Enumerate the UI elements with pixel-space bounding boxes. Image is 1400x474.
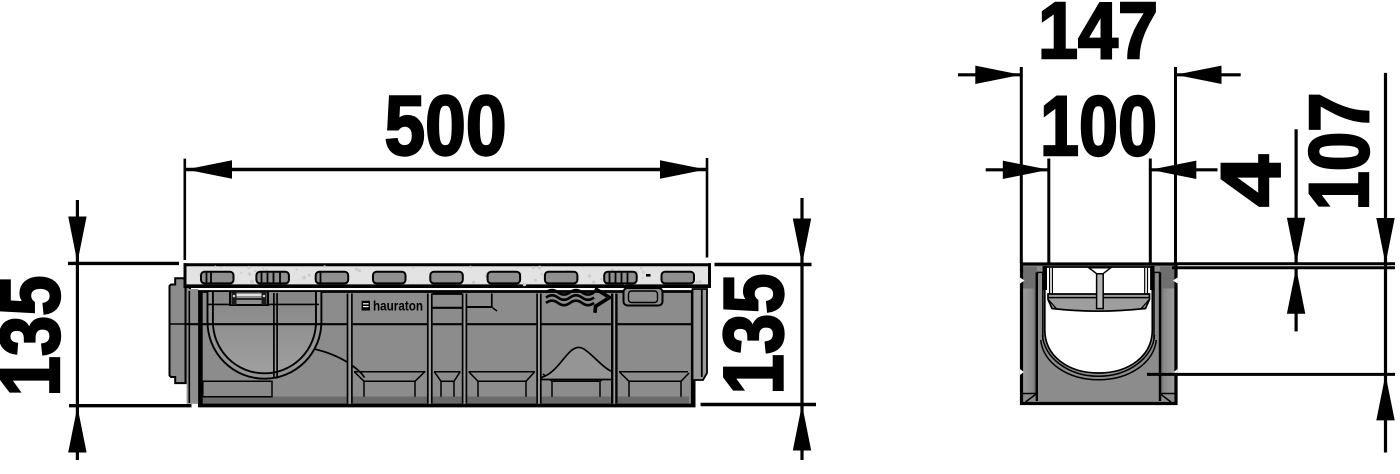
svg-text:100: 100 <box>1040 79 1157 173</box>
svg-text:hauraton: hauraton <box>373 299 423 314</box>
svg-text:4: 4 <box>1204 155 1298 207</box>
svg-text:147: 147 <box>1038 0 1158 75</box>
svg-text:107: 107 <box>1292 93 1386 211</box>
svg-text:135: 135 <box>707 274 801 395</box>
svg-text:135: 135 <box>0 276 77 397</box>
svg-text:500: 500 <box>385 79 507 173</box>
